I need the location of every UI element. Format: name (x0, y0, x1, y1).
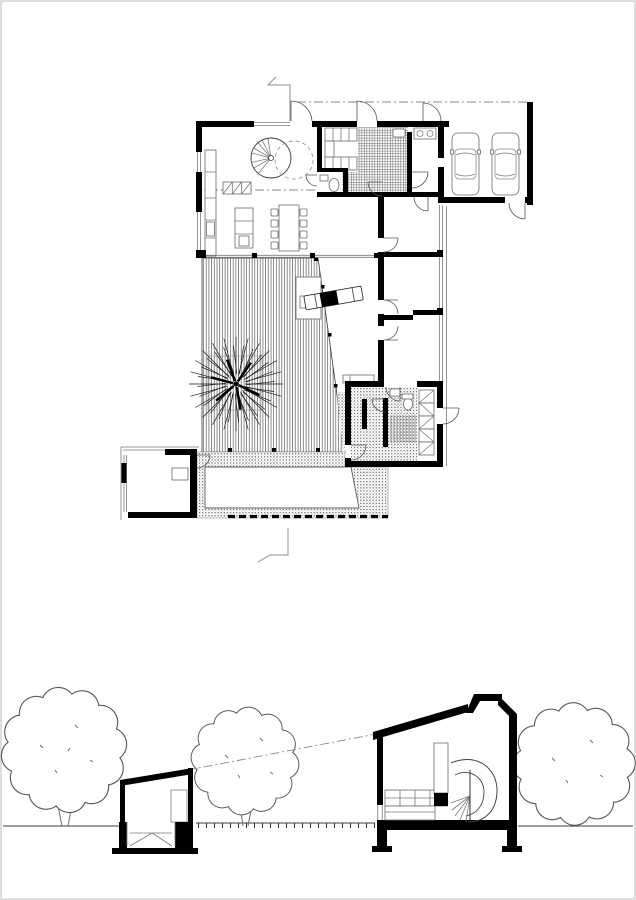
flue (434, 743, 448, 793)
dining-table (271, 205, 307, 251)
car-1 (451, 133, 481, 195)
glass-facade (440, 205, 443, 381)
footing (502, 846, 522, 852)
kitchen (306, 127, 443, 211)
tree-1 (0, 681, 133, 826)
window (198, 152, 201, 172)
chair (300, 231, 307, 238)
chair (271, 242, 278, 249)
door-frame (171, 790, 187, 822)
door-swing (509, 203, 525, 219)
bathroom-sauna (345, 381, 459, 467)
chair (300, 209, 307, 216)
wc-sink (320, 175, 328, 181)
pool-house-roof (120, 768, 193, 786)
wood-deck (202, 257, 345, 452)
sink (393, 129, 405, 137)
section-cut-marker-bottom (258, 528, 288, 562)
door-swing (357, 101, 377, 121)
floor-plan (121, 77, 533, 562)
basin-slab (112, 848, 198, 854)
car-2 (491, 133, 521, 195)
drawing-canvas (0, 0, 636, 900)
deck-edge-tick (272, 448, 276, 452)
chair (271, 231, 278, 238)
niche (172, 468, 188, 480)
section-right-wall (509, 714, 517, 830)
window (198, 212, 201, 250)
chair (300, 220, 307, 227)
section-view (0, 681, 636, 854)
window-jamb (122, 463, 127, 483)
door-swing (384, 238, 398, 252)
deck-edge-tick (228, 448, 232, 452)
door-swing (291, 101, 312, 121)
lounge-area (296, 277, 363, 319)
courtyard-tree (189, 337, 284, 432)
pool-basin (127, 822, 175, 846)
toilet (404, 398, 413, 410)
skylight (466, 694, 502, 713)
pool-house-section (112, 768, 198, 854)
door-swing (384, 326, 398, 340)
footing (372, 846, 392, 852)
carport (438, 102, 533, 219)
spiral-staircase (251, 138, 313, 179)
toilet (329, 179, 339, 192)
sauna-bench (362, 399, 367, 429)
drawing-sheet (0, 0, 636, 900)
pool (205, 467, 359, 508)
tree-2 (184, 700, 306, 826)
door-swing (443, 408, 459, 424)
section-cut-marker-top (268, 77, 290, 121)
door-swing (412, 172, 428, 188)
main-house-section (372, 694, 522, 852)
deck-edge-tick (328, 333, 332, 337)
door-swing (384, 300, 398, 314)
closets (419, 390, 434, 455)
pool-house-plan (121, 447, 210, 520)
sofa (235, 208, 253, 248)
deck-edge-tick (316, 448, 320, 452)
door-swing (423, 103, 441, 121)
chair (271, 209, 278, 216)
tree-3 (502, 692, 636, 837)
door-swing (414, 197, 428, 211)
window (254, 123, 290, 126)
deck-edge-tick (334, 384, 338, 388)
floor-slab (377, 820, 517, 830)
sloped-roof (373, 704, 468, 740)
section-left-wall (377, 737, 383, 805)
chair (300, 242, 307, 249)
door-swing (306, 175, 317, 186)
basin (390, 389, 400, 396)
chair (271, 220, 278, 227)
shelf (205, 150, 216, 256)
deck-edge-tick (321, 285, 325, 289)
entry-hall (223, 138, 313, 194)
spiral-stair-section (451, 759, 497, 822)
tree-trunk (234, 382, 239, 387)
wardrobe (223, 182, 251, 194)
